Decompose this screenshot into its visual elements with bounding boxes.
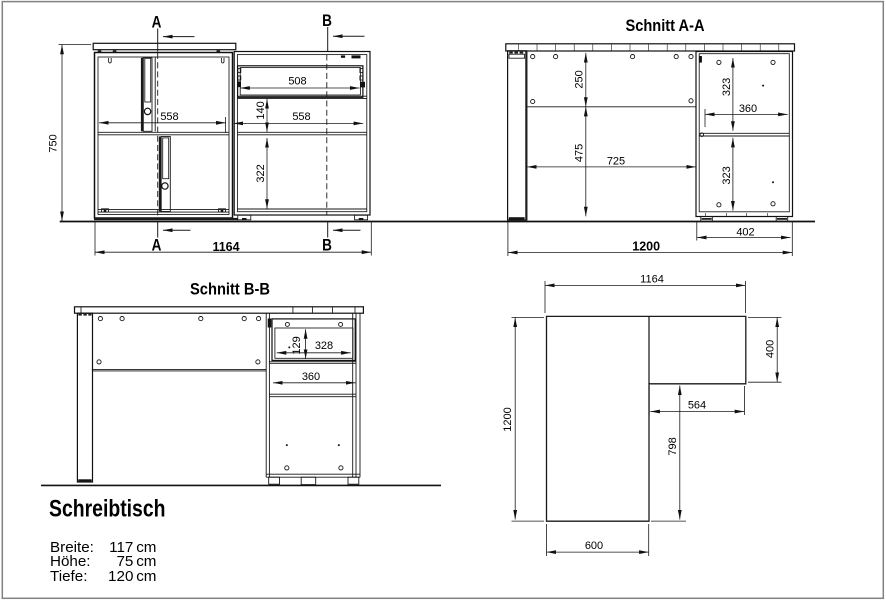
svg-text:A: A	[152, 12, 162, 31]
svg-text:120: 120	[108, 568, 133, 585]
svg-text:140: 140	[255, 101, 267, 119]
svg-text:B: B	[322, 11, 332, 30]
svg-text:400: 400	[765, 340, 777, 358]
svg-text:Tiefe:: Tiefe:	[50, 568, 87, 585]
svg-text:558: 558	[160, 111, 178, 123]
svg-text:725: 725	[607, 155, 625, 167]
svg-text:600: 600	[585, 540, 603, 552]
svg-text:558: 558	[292, 111, 310, 123]
svg-text:360: 360	[739, 103, 757, 115]
svg-text:322: 322	[255, 164, 267, 182]
svg-text:323: 323	[721, 78, 733, 96]
svg-text:328: 328	[315, 340, 333, 352]
svg-text:402: 402	[736, 227, 754, 239]
svg-text:250: 250	[574, 70, 586, 88]
svg-text:475: 475	[574, 144, 586, 162]
svg-text:750: 750	[48, 134, 60, 152]
svg-text:Schnitt A-A: Schnitt A-A	[626, 16, 705, 35]
svg-text:1200: 1200	[632, 240, 660, 254]
svg-text:129: 129	[291, 336, 303, 354]
svg-text:1164: 1164	[640, 273, 664, 285]
svg-text:564: 564	[688, 400, 706, 412]
svg-text:1200: 1200	[502, 407, 514, 431]
svg-text:A: A	[152, 236, 162, 255]
svg-text:Schreibtisch: Schreibtisch	[49, 495, 166, 522]
svg-text:360: 360	[302, 371, 320, 383]
svg-text:508: 508	[288, 75, 306, 87]
svg-text:1164: 1164	[212, 240, 239, 254]
svg-text:323: 323	[721, 166, 733, 184]
svg-text:B: B	[322, 236, 332, 255]
svg-text:798: 798	[667, 437, 679, 455]
svg-text:Schnitt B-B: Schnitt B-B	[190, 280, 270, 299]
svg-text:cm: cm	[136, 568, 156, 585]
